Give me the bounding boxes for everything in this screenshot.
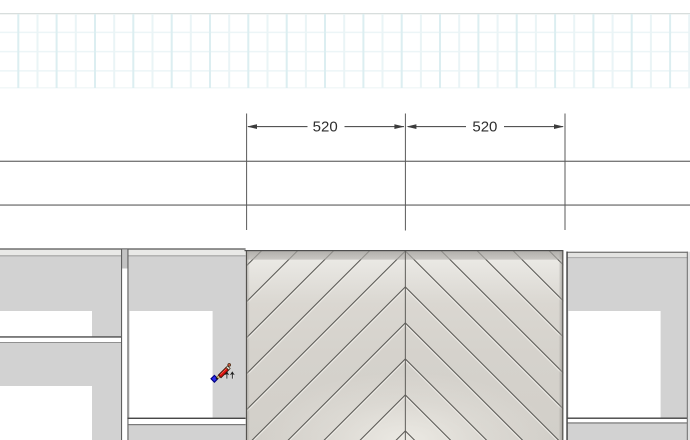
svg-text:520: 520 bbox=[472, 119, 497, 136]
svg-text:520: 520 bbox=[313, 119, 338, 136]
